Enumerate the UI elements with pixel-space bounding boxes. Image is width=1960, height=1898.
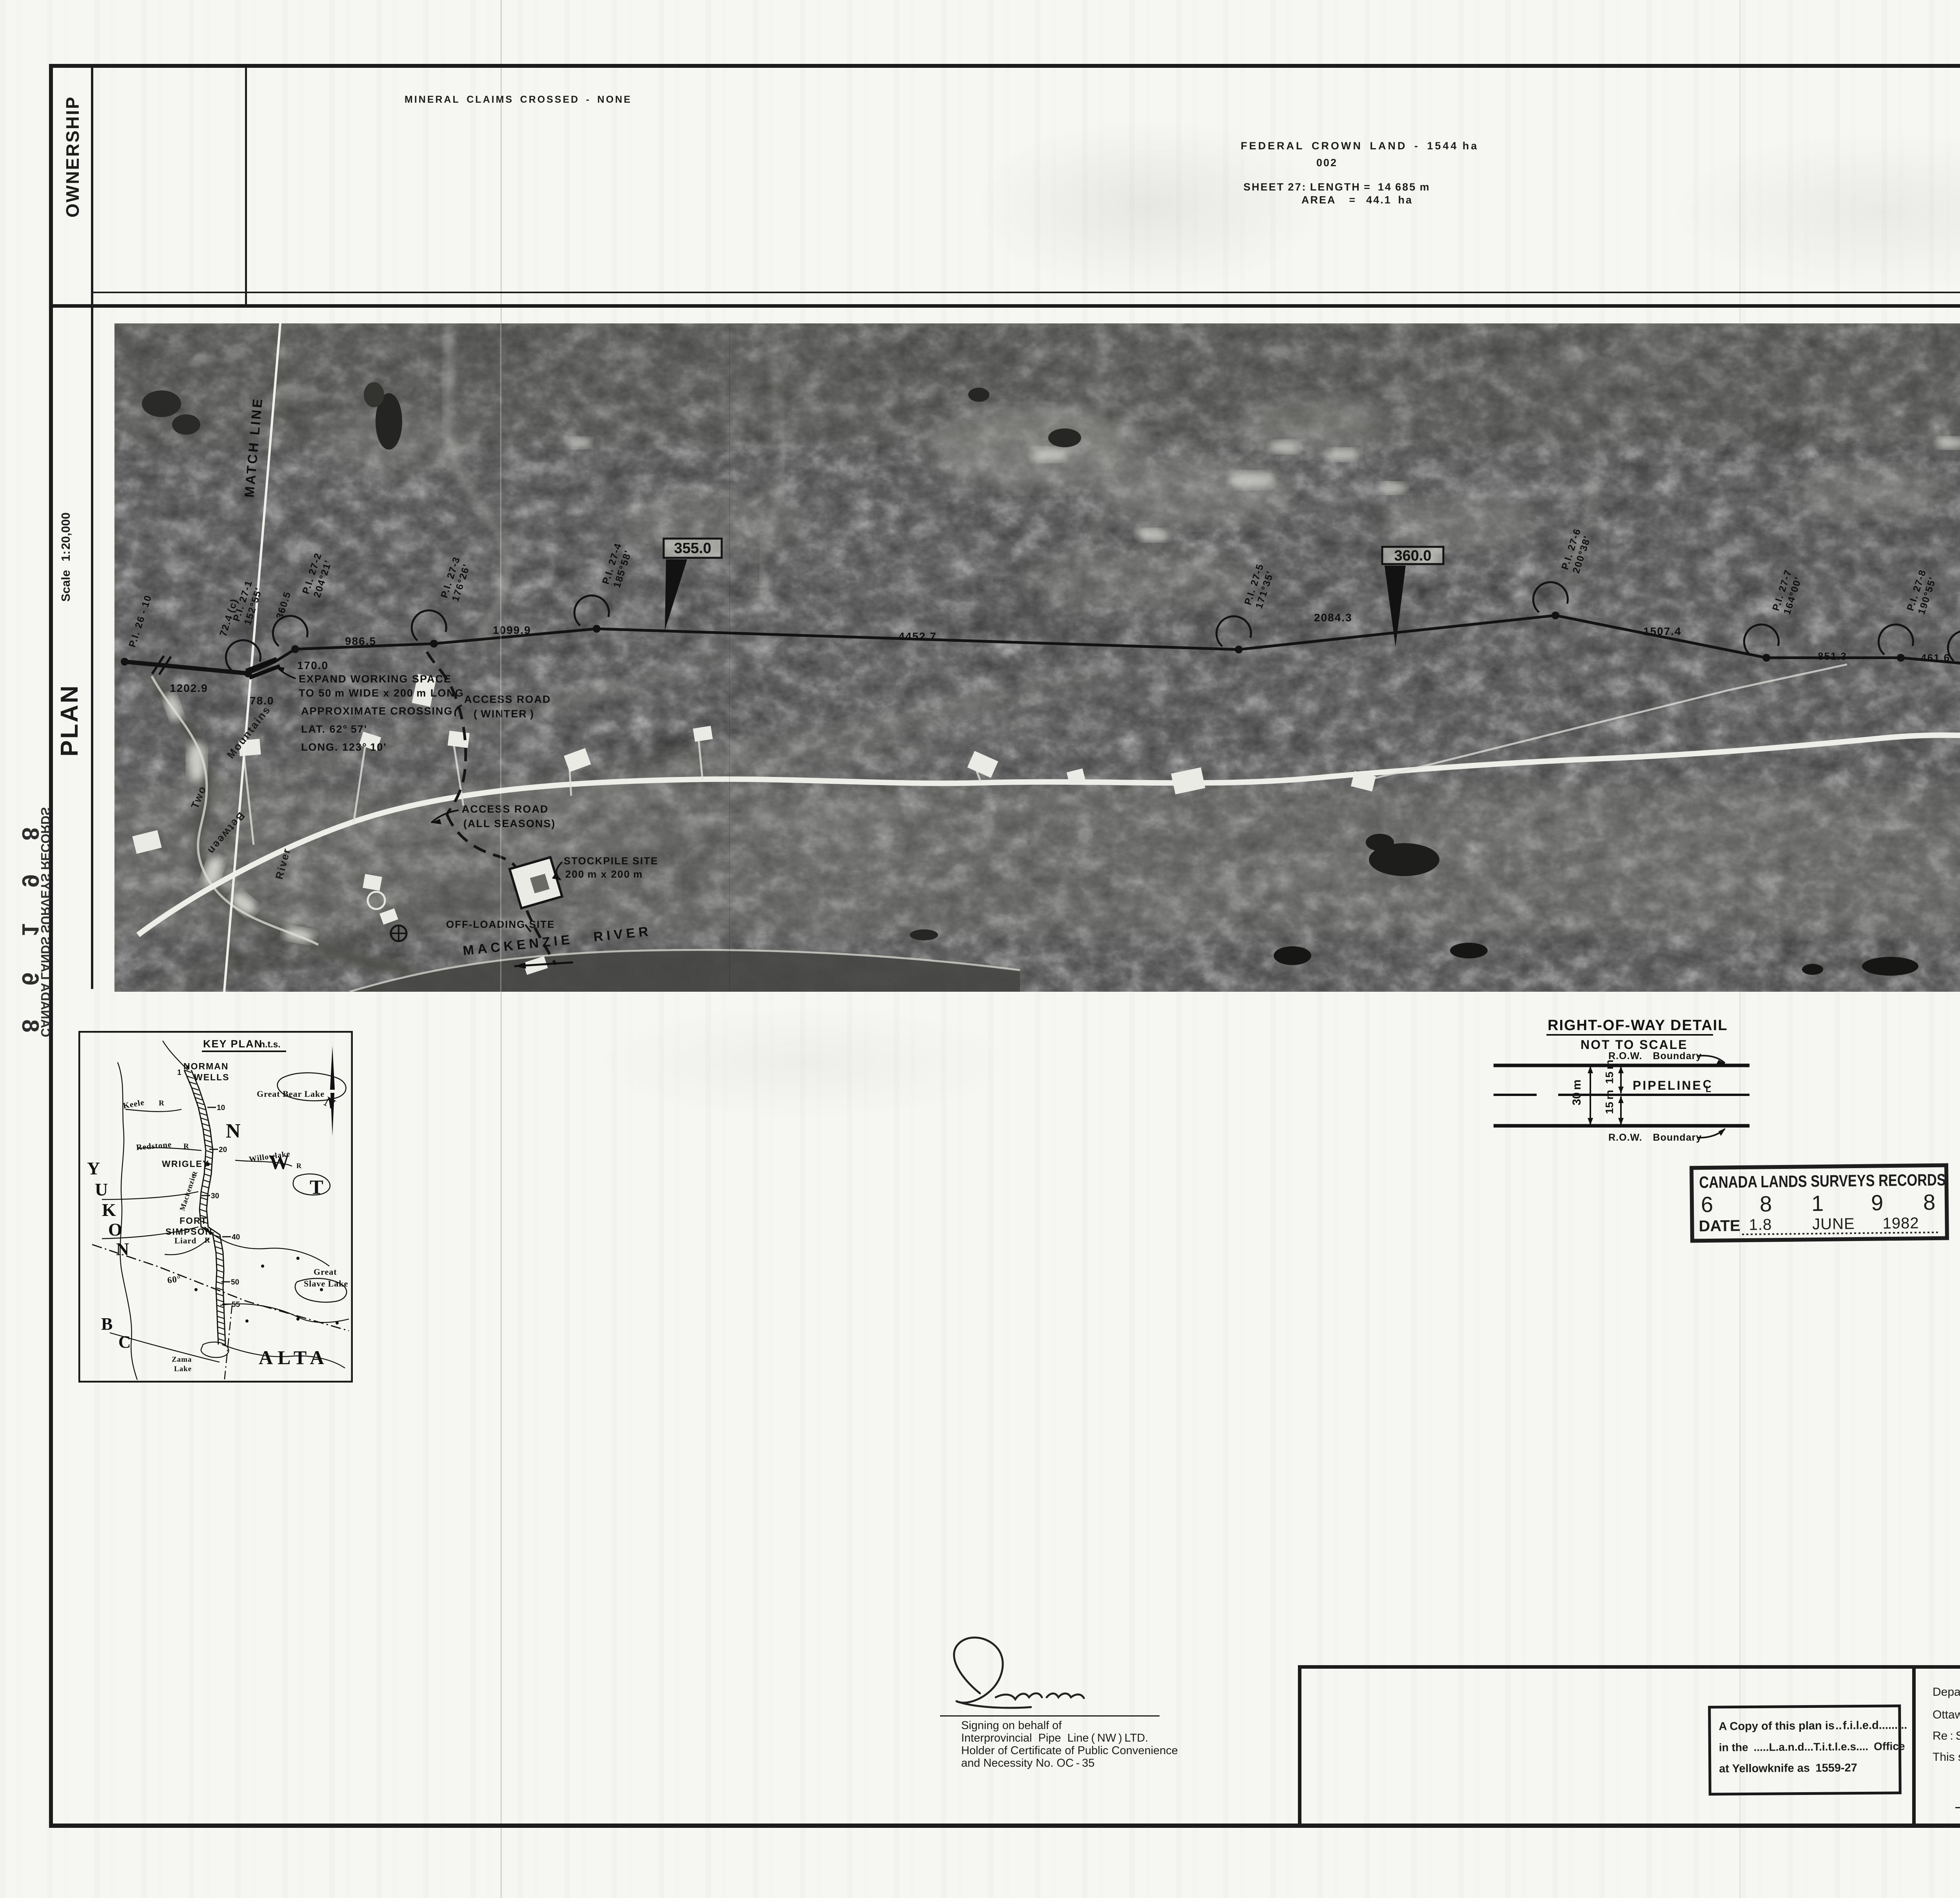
svg-text:U: U	[95, 1179, 108, 1199]
svg-text:R.O.W. Boundary: R.O.W. Boundary	[1608, 1051, 1702, 1062]
svg-text:20: 20	[219, 1146, 227, 1154]
svg-text:Zama: Zama	[172, 1355, 192, 1364]
svg-text:55: 55	[232, 1301, 240, 1309]
svg-text:KEY PLAN: KEY PLAN	[203, 1038, 263, 1050]
svg-text:FORT: FORT	[180, 1216, 207, 1226]
svg-text:RIGHT-OF-WAY DETAIL: RIGHT-OF-WAY DETAIL	[1548, 1017, 1728, 1034]
svg-text:LONG. 123° 10': LONG. 123° 10'	[301, 741, 387, 753]
svg-text:( WINTER ): ( WINTER )	[474, 708, 534, 720]
svg-text:986.5: 986.5	[345, 635, 376, 647]
svg-text:K: K	[102, 1200, 116, 1220]
svg-text:2084.3: 2084.3	[1314, 611, 1352, 624]
svg-text:1202.9: 1202.9	[170, 682, 208, 694]
svg-text:6: 6	[17, 973, 44, 985]
svg-text:30: 30	[211, 1192, 219, 1200]
svg-text:40: 40	[232, 1233, 240, 1241]
svg-text:(ALL SEASONS): (ALL SEASONS)	[463, 818, 556, 829]
svg-text:8: 8	[17, 1020, 44, 1032]
svg-text:R: R	[183, 1142, 189, 1150]
svg-text:R: R	[205, 1236, 210, 1245]
svg-text:N: N	[226, 1120, 241, 1142]
svg-text:PIPELINE: PIPELINE	[1633, 1078, 1702, 1092]
svg-text:WELLS: WELLS	[194, 1072, 230, 1082]
svg-text:STOCKPILE SITE: STOCKPILE SITE	[564, 855, 658, 867]
svg-text:SIMPSON: SIMPSON	[165, 1227, 212, 1237]
svg-text:15 m: 15 m	[1603, 1090, 1615, 1114]
svg-text:C: C	[118, 1332, 131, 1352]
svg-text:Great Bear Lake: Great Bear Lake	[257, 1089, 325, 1099]
svg-text:ALTA: ALTA	[259, 1346, 329, 1368]
svg-text:TO 50 m WIDE x 200 m LONG: TO 50 m WIDE x 200 m LONG	[299, 687, 464, 699]
svg-text:NOT TO SCALE: NOT TO SCALE	[1581, 1038, 1688, 1052]
svg-text:APPROXIMATE CROSSING: APPROXIMATE CROSSING	[301, 705, 453, 717]
svg-text:ACCESS ROAD: ACCESS ROAD	[464, 693, 551, 705]
svg-text:R: R	[159, 1099, 164, 1107]
svg-text:R: R	[296, 1162, 302, 1170]
svg-text:Redstone: Redstone	[136, 1140, 172, 1152]
svg-text:170.0: 170.0	[297, 659, 328, 671]
svg-text:200 m x 200 m: 200 m x 200 m	[565, 868, 643, 880]
svg-text:N: N	[116, 1239, 129, 1259]
svg-text:355.0: 355.0	[674, 540, 711, 557]
svg-text:O: O	[108, 1219, 122, 1239]
svg-text:R.O.W. Boundary: R.O.W. Boundary	[1608, 1132, 1702, 1143]
svg-text:ACCESS ROAD: ACCESS ROAD	[462, 803, 549, 815]
svg-text:Keele: Keele	[122, 1098, 145, 1110]
svg-text:T: T	[310, 1176, 323, 1199]
svg-text:Great: Great	[314, 1267, 337, 1277]
svg-text:W: W	[269, 1151, 289, 1174]
svg-text:L: L	[1706, 1084, 1711, 1094]
svg-text:Y: Y	[87, 1158, 100, 1178]
svg-text:15 m: 15 m	[1603, 1060, 1615, 1084]
svg-text:WRIGLEY: WRIGLEY	[162, 1159, 209, 1169]
svg-text:Slave Lake: Slave Lake	[304, 1279, 348, 1288]
svg-text:461.6: 461.6	[1921, 652, 1950, 664]
svg-text:4452.7: 4452.7	[898, 630, 937, 642]
svg-text:B: B	[101, 1314, 113, 1334]
svg-text:NORMAN: NORMAN	[183, 1061, 229, 1071]
svg-text:LAT. 62° 57': LAT. 62° 57'	[301, 723, 367, 735]
svg-text:1: 1	[177, 1069, 181, 1077]
svg-text:9: 9	[17, 875, 44, 887]
svg-text:EXPAND WORKING SPACE: EXPAND WORKING SPACE	[299, 673, 452, 685]
svg-text:50: 50	[231, 1278, 239, 1287]
svg-text:1099.9: 1099.9	[493, 624, 531, 636]
svg-text:60°: 60°	[167, 1274, 181, 1285]
svg-text:78.0: 78.0	[250, 695, 274, 707]
svg-text:8: 8	[17, 827, 44, 840]
svg-text:Lake: Lake	[174, 1365, 192, 1373]
svg-text:30 m: 30 m	[1570, 1080, 1583, 1105]
svg-text:10: 10	[217, 1104, 225, 1112]
svg-text:360.0: 360.0	[1394, 548, 1431, 564]
svg-text:Liard: Liard	[174, 1236, 196, 1245]
svg-text:851.3: 851.3	[1818, 650, 1847, 662]
svg-text:1: 1	[17, 924, 44, 936]
svg-text:1507.4: 1507.4	[1643, 625, 1682, 637]
svg-text:CANADA LANDS SURVEYS RECORDS: CANADA LANDS SURVEYS RECORDS	[38, 807, 51, 1037]
svg-text:n.t.s.: n.t.s.	[260, 1039, 281, 1049]
